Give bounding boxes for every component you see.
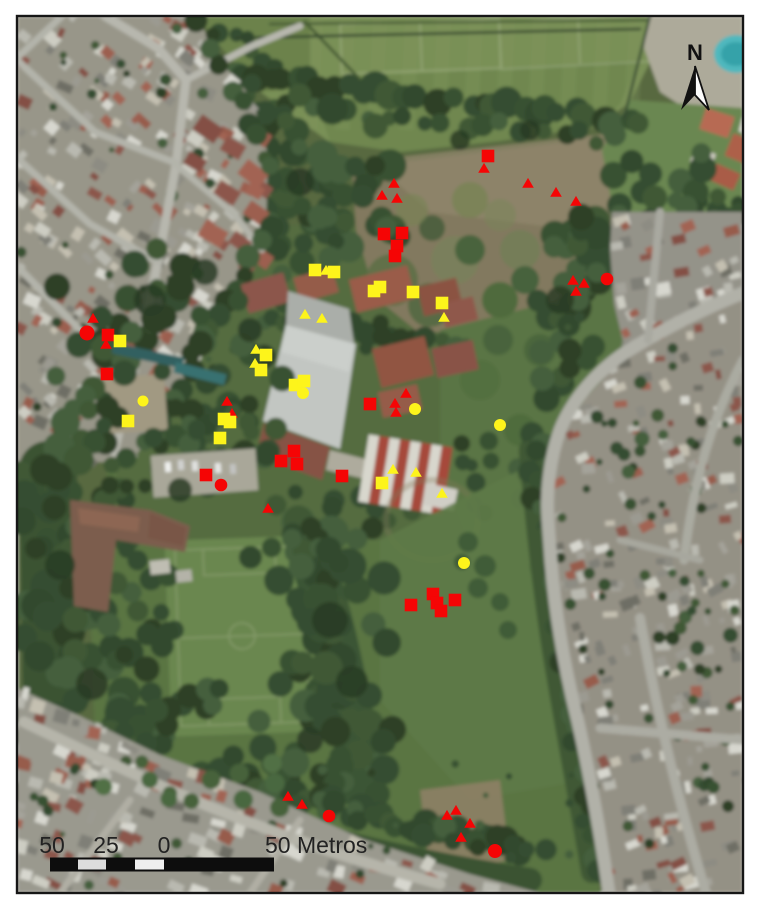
svg-text:N: N — [687, 40, 703, 65]
svg-text:50 Metros: 50 Metros — [265, 832, 367, 858]
svg-text:50: 50 — [39, 832, 65, 858]
svg-text:0: 0 — [158, 832, 171, 858]
svg-text:25: 25 — [93, 832, 119, 858]
